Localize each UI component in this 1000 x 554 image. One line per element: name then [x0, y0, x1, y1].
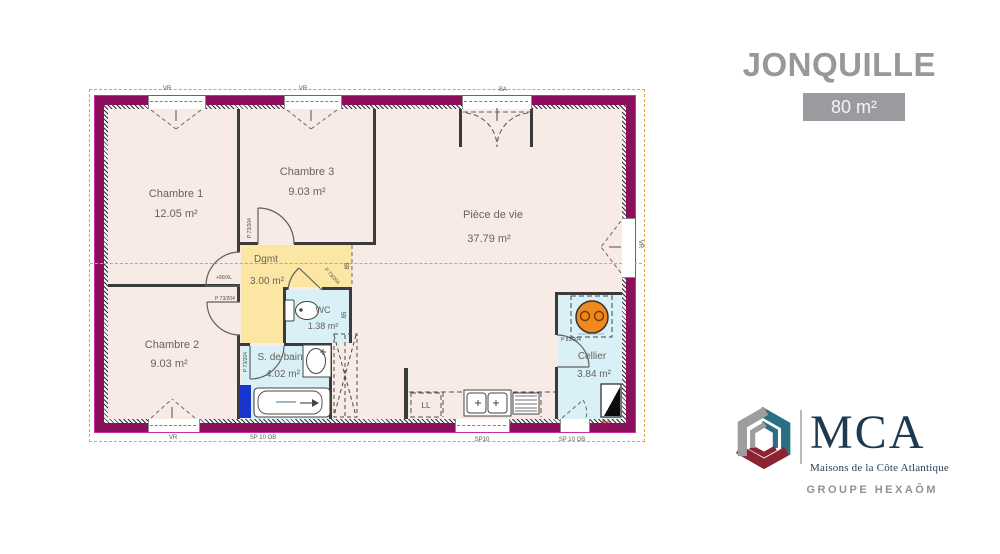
room-area-dgmt: 3.00 m² — [250, 276, 284, 288]
logo-acronym: MCA — [810, 408, 925, 458]
room-label-chambre3: Chambre 3 — [280, 166, 334, 178]
cellier-door-ref-label: P 83/204 — [561, 337, 581, 343]
door-chambre3 — [258, 208, 294, 244]
room-area-wc: 1.38 m² — [308, 320, 339, 332]
room-label-cellier: Cellier — [578, 351, 606, 363]
door-wc — [288, 268, 322, 290]
electrical-panel — [601, 384, 621, 425]
shutter-label: VR — [637, 240, 643, 249]
dimension-85: 85 — [342, 311, 348, 318]
bathtub — [254, 388, 330, 417]
room-label-dgmt: Dgmt — [254, 254, 278, 266]
room-label-chambre2: Chambre 2 — [145, 339, 199, 351]
bay-label: BA — [499, 87, 507, 93]
mca-cube-logo — [733, 407, 795, 469]
room-area-cellier: 3.84 m² — [577, 369, 611, 381]
room-label-wc: WC — [316, 304, 331, 316]
room-label-piece-de-vie: Pièce de vie — [463, 209, 523, 221]
toilet — [285, 300, 319, 321]
window-ticks — [172, 110, 621, 418]
room-label-sdb: S. de bain — [257, 352, 302, 364]
door-chambre2 — [207, 302, 240, 335]
sill-small-label: SP10 — [475, 437, 490, 443]
room-area-chambre1: 12.05 m² — [154, 208, 197, 220]
shutter-label: VR — [169, 435, 177, 441]
shutter-label: VR — [299, 86, 307, 92]
water-heater — [571, 296, 612, 337]
door-ref-label: P 73/204 — [247, 218, 253, 238]
room-area-piece-de-vie: 37.79 m² — [467, 233, 510, 245]
room-area-chambre3: 9.03 m² — [288, 186, 325, 198]
room-area-chambre2: 9.03 m² — [150, 358, 187, 370]
room-label-chambre1: Chambre 1 — [149, 188, 203, 200]
sill-label: SP 10 OB — [559, 437, 586, 443]
kitchen-drainer — [513, 393, 539, 414]
shutter-label: VR — [163, 86, 171, 92]
door-ref-label: P 73/204 — [243, 352, 249, 372]
room-area-sdb: 4.02 m² — [266, 369, 300, 381]
sill-label: SP 10 OB — [250, 435, 277, 441]
logo-group-name: GROUPE HEXAÔM — [806, 484, 938, 496]
door-ref-label: P 73/204 — [215, 296, 235, 302]
floorplan-page: JONQUILLE 80 m² — [0, 0, 1000, 554]
logo-company-name: Maisons de la Côte Atlantique — [810, 462, 949, 474]
closet-symbol — [334, 334, 357, 417]
door-ref-label: P 73/204 — [323, 267, 341, 286]
washing-machine-label: LL — [422, 401, 431, 410]
kitchen-sink — [464, 390, 511, 416]
bathroom-sink — [303, 345, 331, 377]
logo-separator — [800, 410, 802, 464]
window-swings — [151, 110, 621, 418]
threshold-label: +90/XL — [216, 275, 232, 281]
dimension-85: 85 — [345, 262, 351, 269]
